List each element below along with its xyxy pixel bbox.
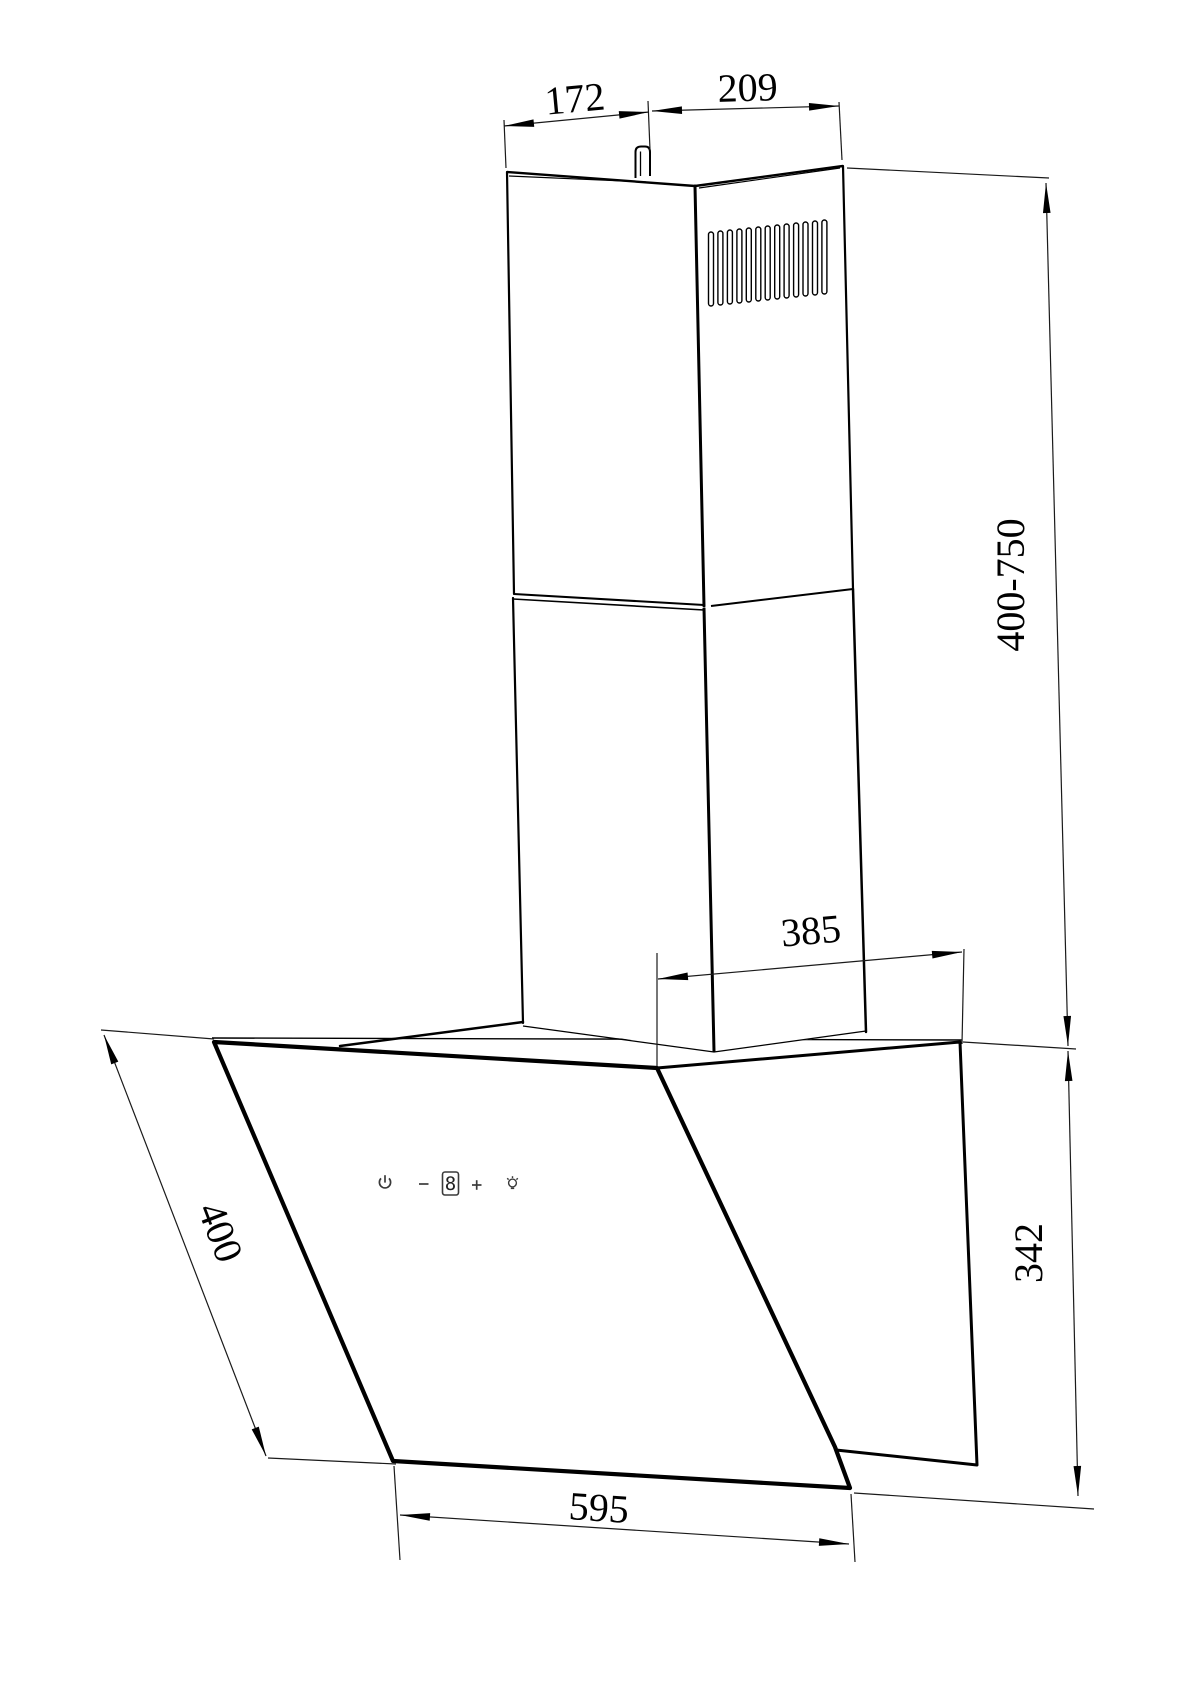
- dim-label-209: 209: [717, 64, 778, 111]
- dimension-chimney-height: 400-750: [847, 168, 1068, 1046]
- hood-top-rim: [212, 1038, 962, 1040]
- hood-diagram: 8 172 209: [0, 0, 1200, 1697]
- dim-label-400-750: 400-750: [988, 518, 1033, 651]
- chimney-lower-section: [513, 589, 866, 1052]
- display-digit: 8: [445, 1173, 456, 1195]
- dimension-chimney-top-depth: 172: [504, 73, 650, 168]
- speed-display: 8: [443, 1172, 459, 1195]
- dimension-chimney-top-width: 209: [652, 64, 842, 160]
- dim-label-595: 595: [567, 1483, 630, 1532]
- dim-label-385: 385: [779, 905, 843, 955]
- chimney-upper-section: [507, 166, 853, 610]
- dim-label-172: 172: [543, 73, 607, 123]
- dim-label-400: 400: [189, 1196, 253, 1268]
- dim-label-342: 342: [1006, 1223, 1051, 1283]
- duct-outlet-flap: [636, 147, 651, 179]
- technical-drawing-page: 8 172 209: [0, 0, 1200, 1697]
